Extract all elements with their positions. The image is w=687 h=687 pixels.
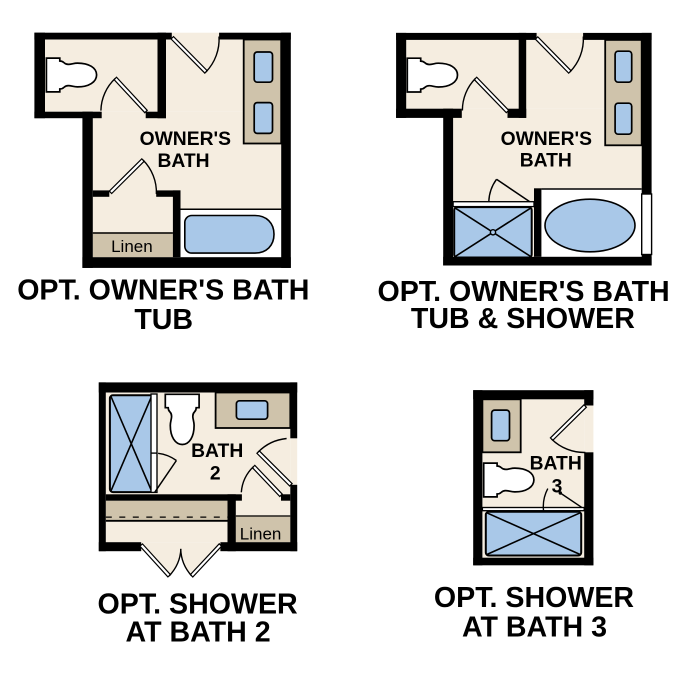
svg-text:Linen: Linen [111,237,153,256]
svg-text:OPT. SHOWER: OPT. SHOWER [434,582,635,614]
svg-text:Linen: Linen [240,524,282,543]
svg-text:3: 3 [552,477,563,498]
svg-text:BATH: BATH [191,441,243,462]
svg-text:AT BATH 2: AT BATH 2 [126,616,271,648]
svg-text:OWNER'S: OWNER'S [140,129,231,150]
svg-text:BATH: BATH [157,151,209,172]
svg-text:AT BATH 3: AT BATH 3 [462,611,607,643]
svg-text:2: 2 [210,464,221,485]
svg-text:BATH: BATH [530,453,582,474]
svg-text:OWNER'S: OWNER'S [501,129,592,150]
svg-text:BATH: BATH [520,151,572,172]
svg-text:TUB: TUB [134,304,193,336]
svg-text:TUB & SHOWER: TUB & SHOWER [411,303,635,335]
svg-text:OPT. OWNER'S BATH: OPT. OWNER'S BATH [17,275,309,307]
